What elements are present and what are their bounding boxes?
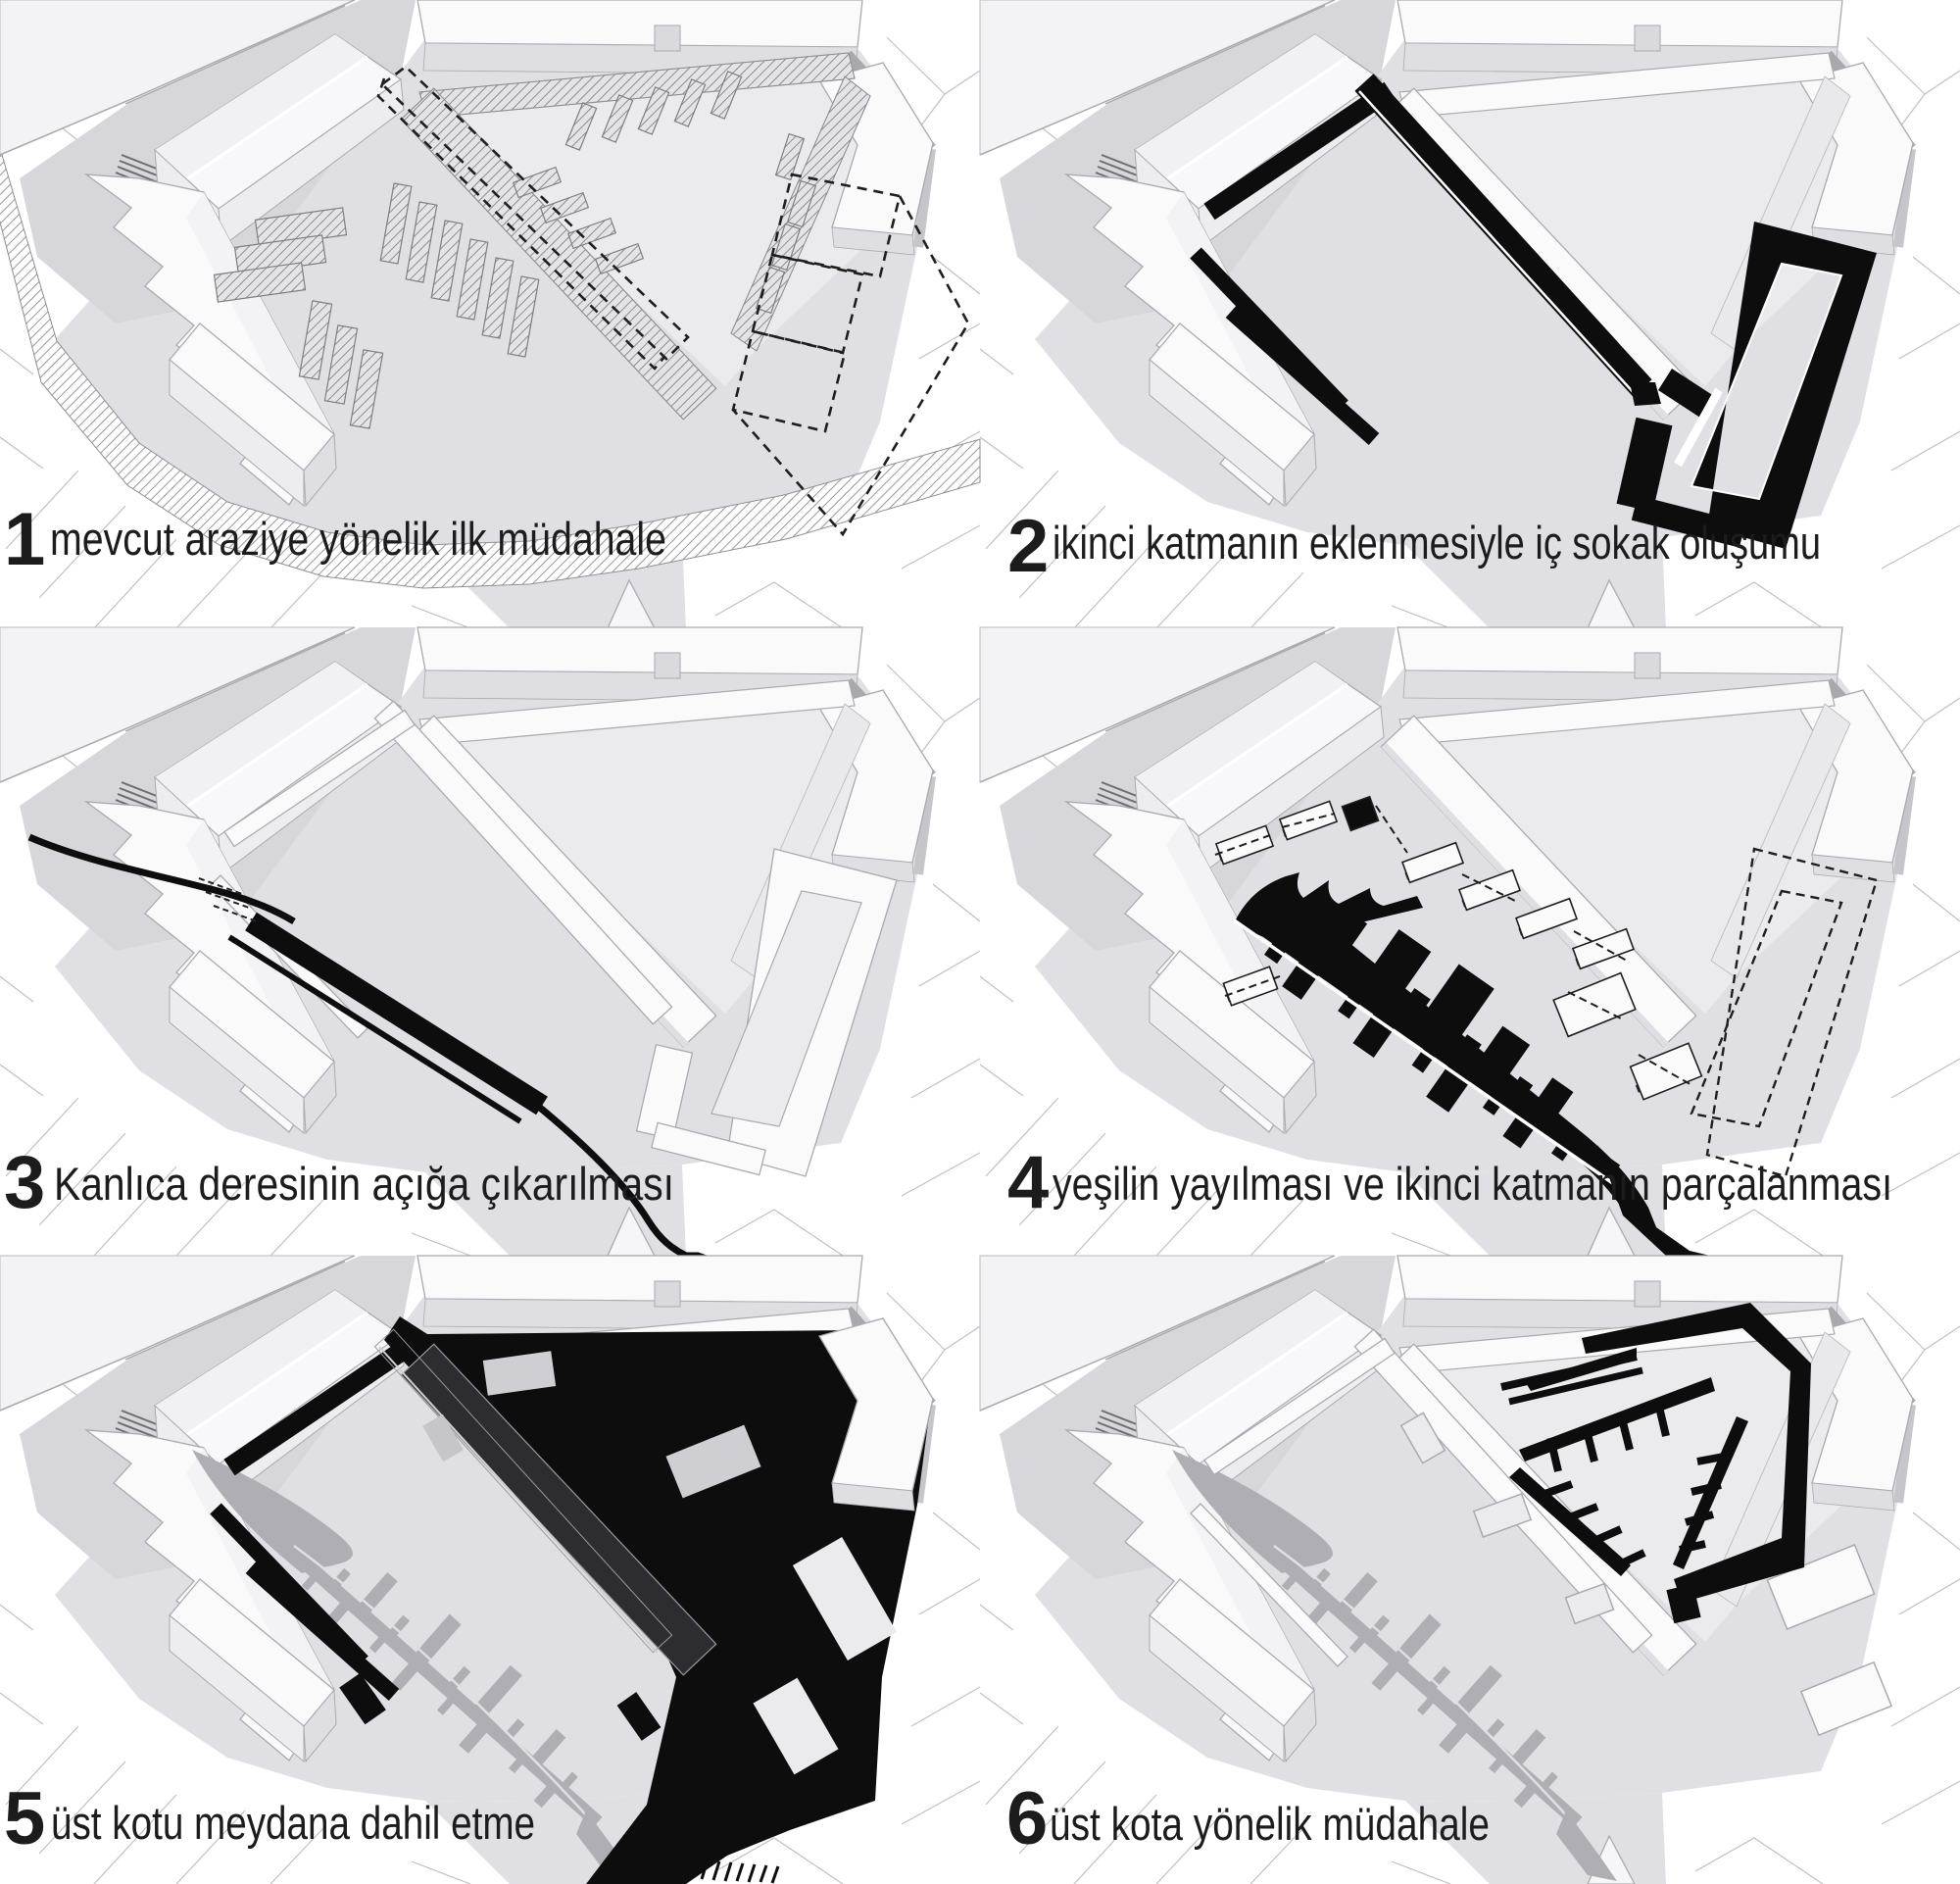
svg-text:Kanlıca deresinin açığa çıkarı: Kanlıca deresinin açığa çıkarılması	[54, 1158, 674, 1210]
svg-text:ikinci katmanın eklenmesiyle i: ikinci katmanın eklenmesiyle iç sokak ol…	[1053, 517, 1821, 569]
svg-text:mevcut araziye yönelik ilk müd: mevcut araziye yönelik ilk müdahale	[50, 513, 666, 565]
svg-text:2: 2	[1007, 505, 1049, 588]
svg-text:6: 6	[1006, 1777, 1048, 1860]
svg-text:3: 3	[4, 1141, 45, 1224]
svg-text:1: 1	[4, 498, 45, 581]
svg-text:4: 4	[1007, 1141, 1049, 1224]
svg-text:üst kota yönelik müdahale: üst kota yönelik müdahale	[1050, 1798, 1490, 1850]
svg-text:üst kotu meydana dahil etme: üst kotu meydana dahil etme	[51, 1797, 535, 1849]
svg-text:5: 5	[4, 1777, 45, 1860]
svg-text:yeşilin yayılması ve ikinci ka: yeşilin yayılması ve ikinci katmanın par…	[1053, 1158, 1892, 1210]
